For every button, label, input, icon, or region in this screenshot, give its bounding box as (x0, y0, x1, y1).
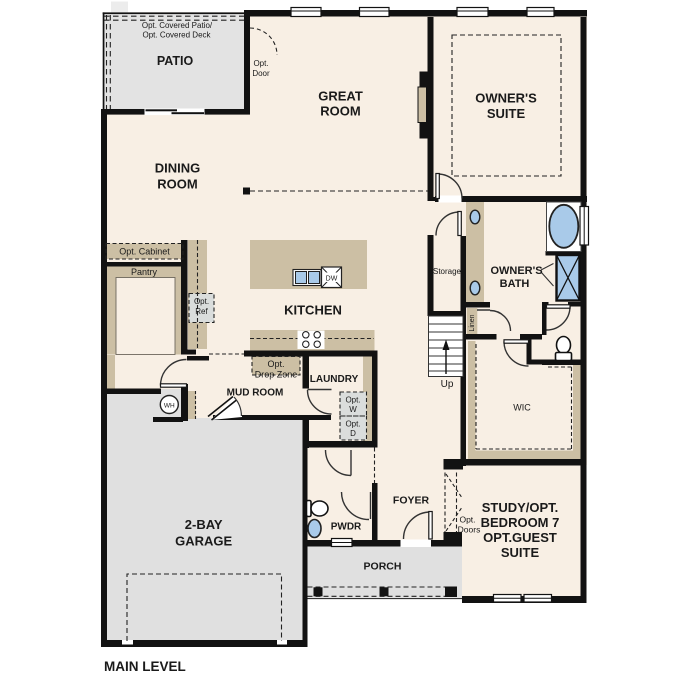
svg-text:OWNER'S: OWNER'S (475, 91, 537, 106)
svg-text:Opt. Covered Patio/: Opt. Covered Patio/ (142, 21, 213, 30)
svg-text:WH: WH (164, 403, 175, 410)
svg-text:BEDROOM 7: BEDROOM 7 (481, 515, 560, 530)
svg-text:Door: Door (252, 69, 270, 78)
svg-text:PWDR: PWDR (331, 522, 362, 533)
svg-text:FOYER: FOYER (393, 495, 430, 507)
svg-text:STUDY/OPT.: STUDY/OPT. (482, 500, 559, 515)
svg-text:OPT.GUEST: OPT.GUEST (483, 530, 557, 545)
svg-text:OWNER'S: OWNER'S (490, 265, 542, 277)
svg-text:MUD ROOM: MUD ROOM (227, 388, 284, 399)
svg-text:W: W (349, 405, 357, 414)
svg-text:DINING: DINING (155, 161, 201, 176)
svg-text:Opt.: Opt. (459, 515, 475, 525)
svg-text:DW: DW (326, 276, 338, 283)
svg-text:WIC: WIC (513, 403, 531, 413)
svg-text:LAUNDRY: LAUNDRY (310, 374, 359, 385)
svg-text:Linen: Linen (469, 314, 476, 331)
svg-text:Opt.: Opt. (345, 420, 360, 429)
svg-text:SUITE: SUITE (501, 545, 540, 560)
svg-text:SUITE: SUITE (487, 106, 526, 121)
svg-text:Doors: Doors (458, 525, 481, 535)
svg-text:Drop Zone: Drop Zone (255, 370, 298, 380)
svg-text:2-BAY: 2-BAY (185, 517, 223, 532)
svg-text:PORCH: PORCH (364, 561, 402, 573)
svg-text:Up: Up (441, 379, 454, 390)
svg-text:KITCHEN: KITCHEN (284, 303, 342, 318)
svg-text:BATH: BATH (500, 278, 530, 290)
svg-text:GREAT: GREAT (318, 89, 363, 104)
svg-text:D: D (350, 429, 356, 438)
svg-text:Opt. Cabinet: Opt. Cabinet (119, 247, 170, 257)
svg-text:Opt.: Opt. (267, 359, 284, 369)
svg-text:Opt.: Opt. (194, 297, 209, 306)
svg-text:GARAGE: GARAGE (175, 534, 232, 549)
svg-text:ROOM: ROOM (157, 177, 197, 192)
svg-text:Opt. Covered Deck: Opt. Covered Deck (142, 31, 211, 40)
svg-text:Storage: Storage (433, 267, 462, 276)
svg-text:Pantry: Pantry (131, 267, 158, 277)
svg-text:MAIN LEVEL: MAIN LEVEL (104, 659, 186, 674)
svg-text:PATIO: PATIO (157, 54, 194, 68)
svg-text:Ref: Ref (195, 307, 208, 316)
svg-text:Opt.: Opt. (345, 396, 360, 405)
svg-text:ROOM: ROOM (320, 104, 360, 119)
svg-text:Opt.: Opt. (253, 59, 268, 68)
